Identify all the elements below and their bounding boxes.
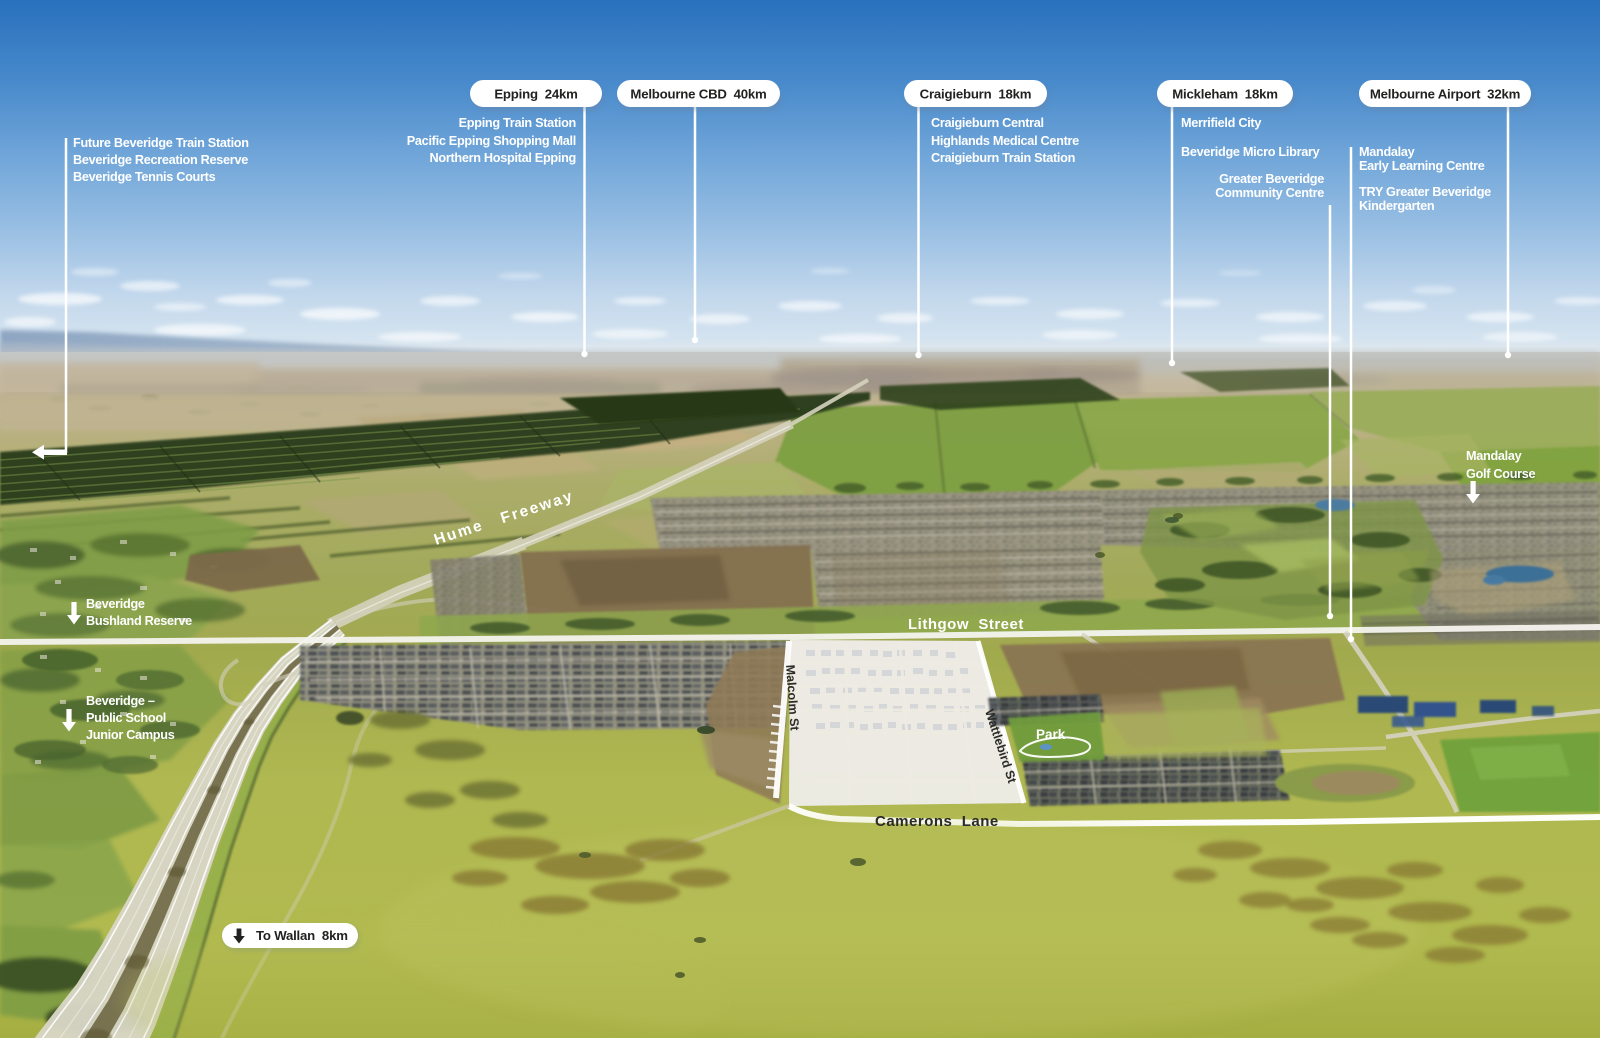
svg-text:Future Beveridge Train Station: Future Beveridge Train Station: [73, 136, 249, 150]
svg-text:TRY Greater Beveridge: TRY Greater Beveridge: [1359, 185, 1491, 199]
svg-text:Lithgow Street: Lithgow Street: [908, 616, 1024, 633]
svg-text:Beveridge Tennis Courts: Beveridge Tennis Courts: [73, 170, 216, 184]
svg-text:Highlands Medical Centre: Highlands Medical Centre: [931, 134, 1079, 148]
svg-text:Merrifield City: Merrifield City: [1181, 116, 1261, 130]
svg-text:Junior Campus: Junior Campus: [86, 728, 175, 742]
svg-text:Beveridge Micro Library: Beveridge Micro Library: [1181, 145, 1320, 159]
svg-text:Beveridge Recreation Reserve: Beveridge Recreation Reserve: [73, 153, 248, 167]
svg-text:Greater Beveridge: Greater Beveridge: [1219, 172, 1324, 186]
svg-text:Public School: Public School: [86, 711, 166, 725]
svg-text:Golf Course: Golf Course: [1466, 467, 1536, 481]
svg-text:Pacific Epping Shopping Mall: Pacific Epping Shopping Mall: [407, 134, 576, 148]
svg-text:Craigieburn Train Station: Craigieburn Train Station: [931, 151, 1075, 165]
svg-text:Early Learning Centre: Early Learning Centre: [1359, 159, 1485, 173]
svg-text:Melbourne CBD 40km: Melbourne CBD 40km: [630, 87, 766, 102]
svg-text:Beveridge: Beveridge: [86, 597, 145, 611]
svg-text:Kindergarten: Kindergarten: [1359, 199, 1434, 213]
svg-text:To Wallan 8km: To Wallan 8km: [256, 928, 348, 943]
svg-text:Epping 24km: Epping 24km: [494, 87, 577, 102]
svg-text:Camerons Lane: Camerons Lane: [875, 813, 999, 830]
svg-text:Melbourne Airport 32km: Melbourne Airport 32km: [1370, 87, 1520, 102]
svg-text:Northern Hospital Epping: Northern Hospital Epping: [430, 151, 576, 165]
svg-text:Park: Park: [1036, 727, 1066, 742]
svg-text:Craigieburn 18km: Craigieburn 18km: [920, 87, 1032, 102]
svg-text:Craigieburn Central: Craigieburn Central: [931, 116, 1044, 130]
svg-text:Bushland Reserve: Bushland Reserve: [86, 614, 192, 628]
svg-text:Beveridge –: Beveridge –: [86, 694, 155, 708]
svg-text:Community Centre: Community Centre: [1215, 186, 1324, 200]
svg-text:Mandalay: Mandalay: [1359, 145, 1415, 159]
svg-text:Mandalay: Mandalay: [1466, 449, 1522, 463]
svg-text:Epping Train Station: Epping Train Station: [459, 116, 576, 130]
svg-text:Mickleham 18km: Mickleham 18km: [1172, 87, 1278, 102]
